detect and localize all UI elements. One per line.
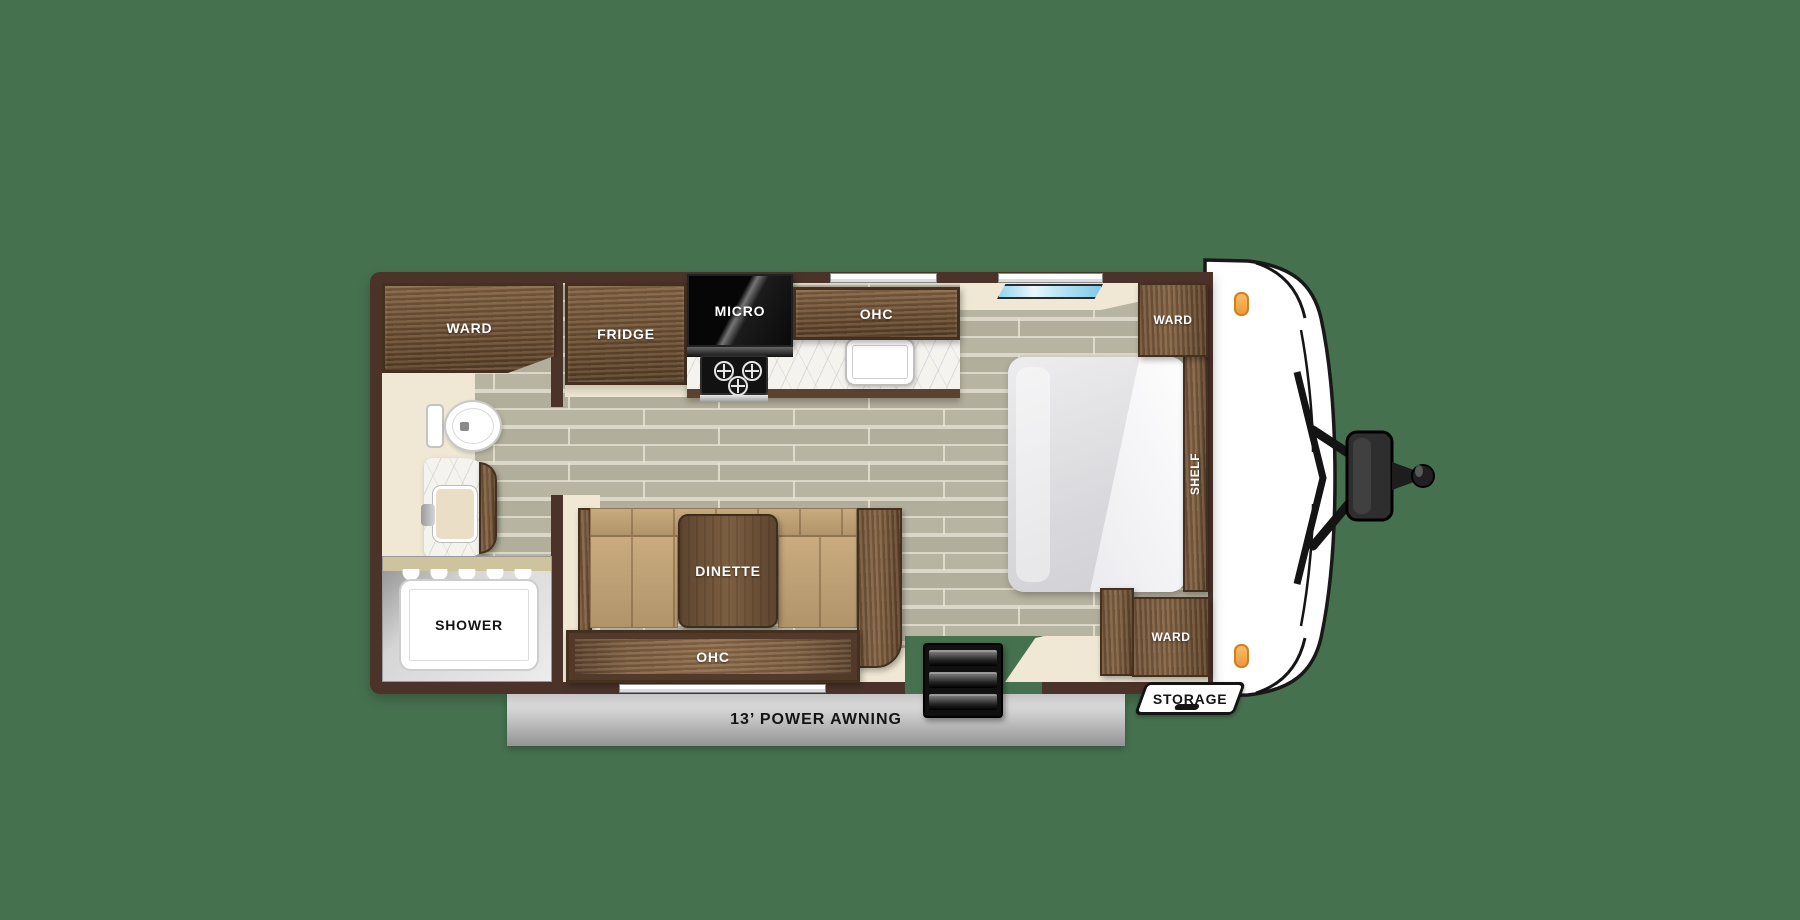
front-cap [1205,260,1335,696]
dinette-right-panel [857,508,902,668]
stove-drawer [700,395,768,402]
clearance-light-bottom [1234,644,1249,668]
overhead-cabinet-dinette: OHC [566,630,860,683]
bed-foot-nightstand [1100,588,1134,676]
skylight [997,284,1103,299]
hitch-ball [1412,465,1434,487]
shelf-cabinet: SHELF [1183,355,1208,592]
hitch-coupler [1392,462,1414,490]
ohc-dinette-label: OHC [696,649,730,665]
micro-label: MICRO [715,303,766,319]
floorplan-scene: 13’ POWER AWNING [0,0,1800,920]
dinette-label: DINETTE [695,563,761,579]
entry-steps [923,643,1003,718]
dinette-bench-right [778,536,857,628]
ohc-kitchen-label: OHC [860,306,894,322]
ward-head-label: WARD [1153,313,1192,327]
fridge-label: FRIDGE [597,326,655,342]
stove-cooktop [700,355,768,395]
overhead-cabinet-kitchen: OHC [793,287,960,340]
shower-label: SHOWER [435,617,503,633]
window-dinette [619,684,826,693]
kitchen-sink [845,338,915,386]
microwave: MICRO [687,274,793,347]
ward-foot-label: WARD [1151,630,1190,644]
window-bedroom [998,273,1103,283]
shower-pan: SHOWER [399,579,539,671]
toilet-tank [426,404,444,448]
dinette-bench-left [590,536,678,628]
ward-cabinet-bed-foot: WARD [1132,597,1210,677]
bathroom-wall-lower [551,495,563,682]
power-awning-band: 13’ POWER AWNING [507,694,1125,746]
vanity-wood-edge [479,462,497,554]
storage-compartment: STORAGE [1134,682,1246,715]
ward-cabinet-bathroom: WARD [382,283,557,373]
ward-bathroom-label: WARD [447,320,493,336]
toilet-bowl [444,400,502,452]
faucet [421,504,435,526]
ward-cabinet-bed-head: WARD [1138,283,1208,357]
fridge: FRIDGE [565,283,687,385]
shower-stall: SHOWER [382,556,552,682]
fridge-shadow [565,385,687,397]
bed-mattress [1008,357,1186,592]
clearance-light-top [1234,292,1249,316]
bathroom-sink [433,486,477,542]
dinette-table: DINETTE [678,514,778,628]
awning-label: 13’ POWER AWNING [730,711,902,729]
shelf-label: SHELF [1189,452,1203,494]
window-kitchen [830,273,937,283]
